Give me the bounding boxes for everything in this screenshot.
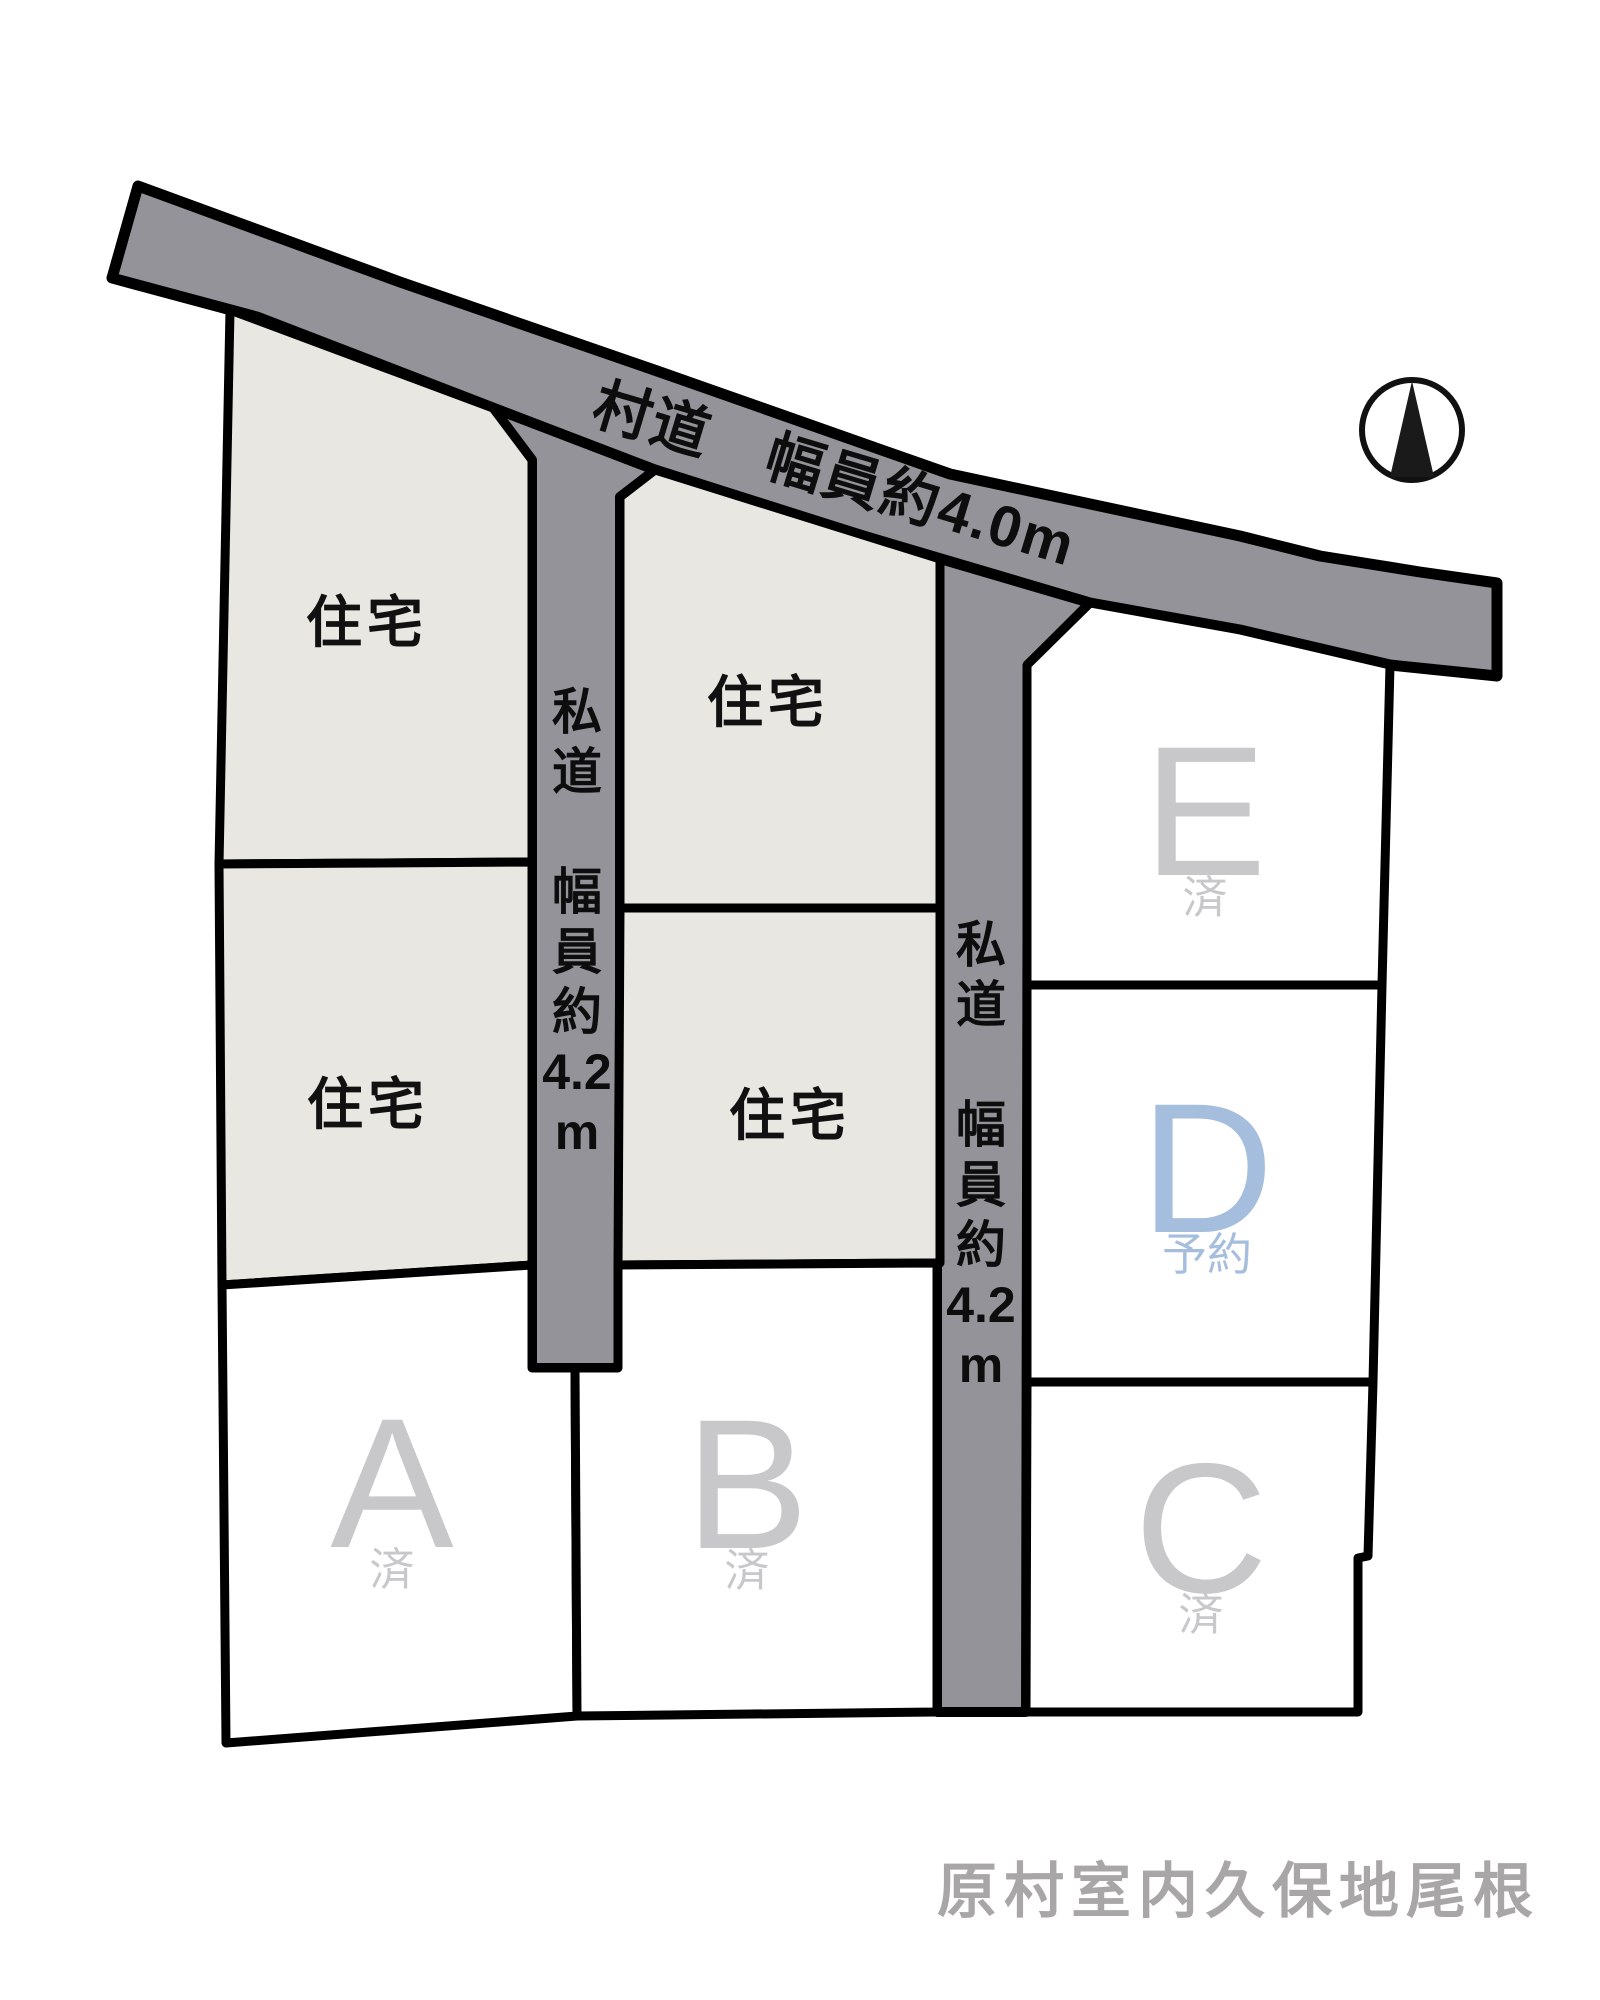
plot-c-label: C 済 [1091, 1437, 1311, 1637]
footer-location-label: 原村室内久保地尾根 [890, 1843, 1540, 1930]
plot-a-status: 済 [282, 1547, 502, 1592]
plot-d-label: D 予約 [1097, 1077, 1317, 1277]
plot-c-status: 済 [1091, 1592, 1311, 1637]
private-road-right-label: 私 道 幅 員 約 4.2 m [916, 915, 1046, 1395]
residential-lot-top-left-label: 住宅 [257, 578, 477, 659]
plot-a-label: A 済 [282, 1392, 502, 1592]
plot-d-status: 予約 [1097, 1232, 1317, 1277]
site-plan-drawing [0, 0, 1600, 2000]
plot-e-label: E 済 [1095, 720, 1315, 920]
plot-b-label: B 済 [637, 1393, 857, 1593]
plot-a-b-divider [575, 1368, 577, 1716]
residential-lot-mid-left-label: 住宅 [258, 1060, 478, 1141]
plot-e-status: 済 [1095, 875, 1315, 920]
north-arrow-icon [1362, 380, 1462, 480]
residential-lot-mid-middle-label: 住宅 [680, 1071, 900, 1152]
residential-lot-top-middle-label: 住宅 [658, 658, 878, 739]
site-plan: 村道 幅員約4.0m 私 道 幅 員 約 4.2 m 私 道 幅 員 約 4.2… [0, 0, 1600, 2000]
private-road-left-label: 私 道 幅 員 約 4.2 m [512, 682, 642, 1162]
plot-b-status: 済 [637, 1548, 857, 1593]
